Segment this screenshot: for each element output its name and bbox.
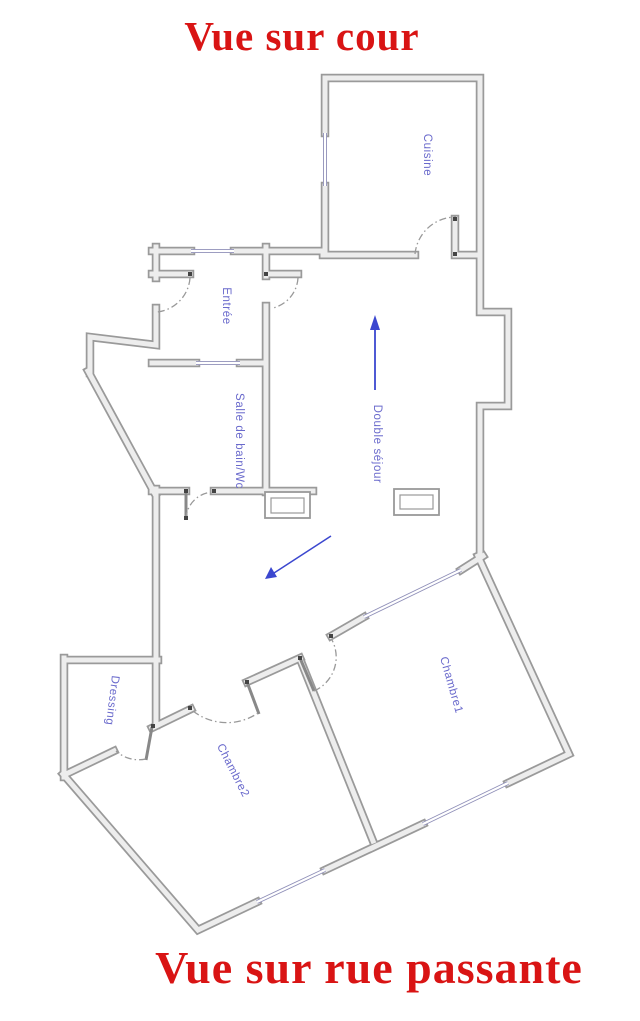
up-arrow-icon [370, 315, 380, 390]
room-label-cuisine: Cuisine [421, 134, 433, 177]
door-hinges [151, 217, 457, 728]
walls-fill [63, 78, 569, 930]
room-label-chambre2: Chambre2 [214, 742, 251, 800]
room-label-chambre1: Chambre1 [437, 655, 465, 715]
room-label-entree: Entrée [220, 287, 232, 324]
down-left-arrow-icon [265, 536, 331, 579]
room-label-dressing: Dressing [103, 675, 121, 726]
title-vue-sur-rue-passante: Vue sur rue passante [155, 941, 583, 994]
floorplan-drawing: Cuisine Entrée Salle de bain/Wc Double s… [0, 0, 640, 1021]
radiator-left [265, 492, 310, 518]
walls-outline [63, 78, 569, 930]
room-label-double-sejour: Double séjour [371, 405, 383, 484]
room-label-salle-de-bain: Salle de bain/Wc [233, 393, 245, 489]
floorplan-page: Vue sur cour [0, 0, 640, 1021]
radiator-right [394, 489, 439, 515]
